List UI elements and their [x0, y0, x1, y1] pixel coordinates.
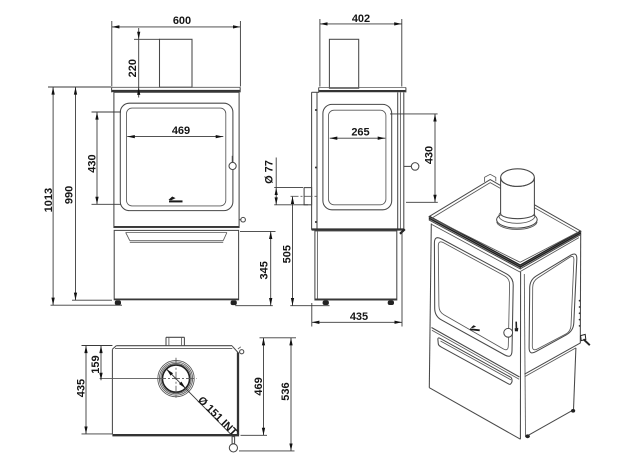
svg-text:990: 990	[63, 186, 75, 204]
svg-text:430: 430	[87, 154, 99, 172]
svg-text:Ø 77: Ø 77	[263, 160, 275, 184]
svg-text:1013: 1013	[43, 188, 55, 212]
svg-text:536: 536	[280, 382, 292, 400]
svg-text:469: 469	[253, 377, 265, 395]
svg-text:435: 435	[350, 311, 368, 323]
svg-text:600: 600	[173, 15, 191, 27]
svg-text:159: 159	[90, 355, 102, 373]
svg-text:220: 220	[127, 59, 139, 77]
svg-text:265: 265	[351, 126, 369, 138]
svg-text:345: 345	[258, 261, 270, 279]
svg-text:Ø 151 INT: Ø 151 INT	[195, 394, 240, 439]
svg-text:430: 430	[423, 146, 435, 164]
svg-text:435: 435	[75, 379, 87, 397]
svg-text:469: 469	[172, 125, 190, 137]
svg-text:402: 402	[352, 13, 370, 25]
svg-text:505: 505	[281, 245, 293, 263]
